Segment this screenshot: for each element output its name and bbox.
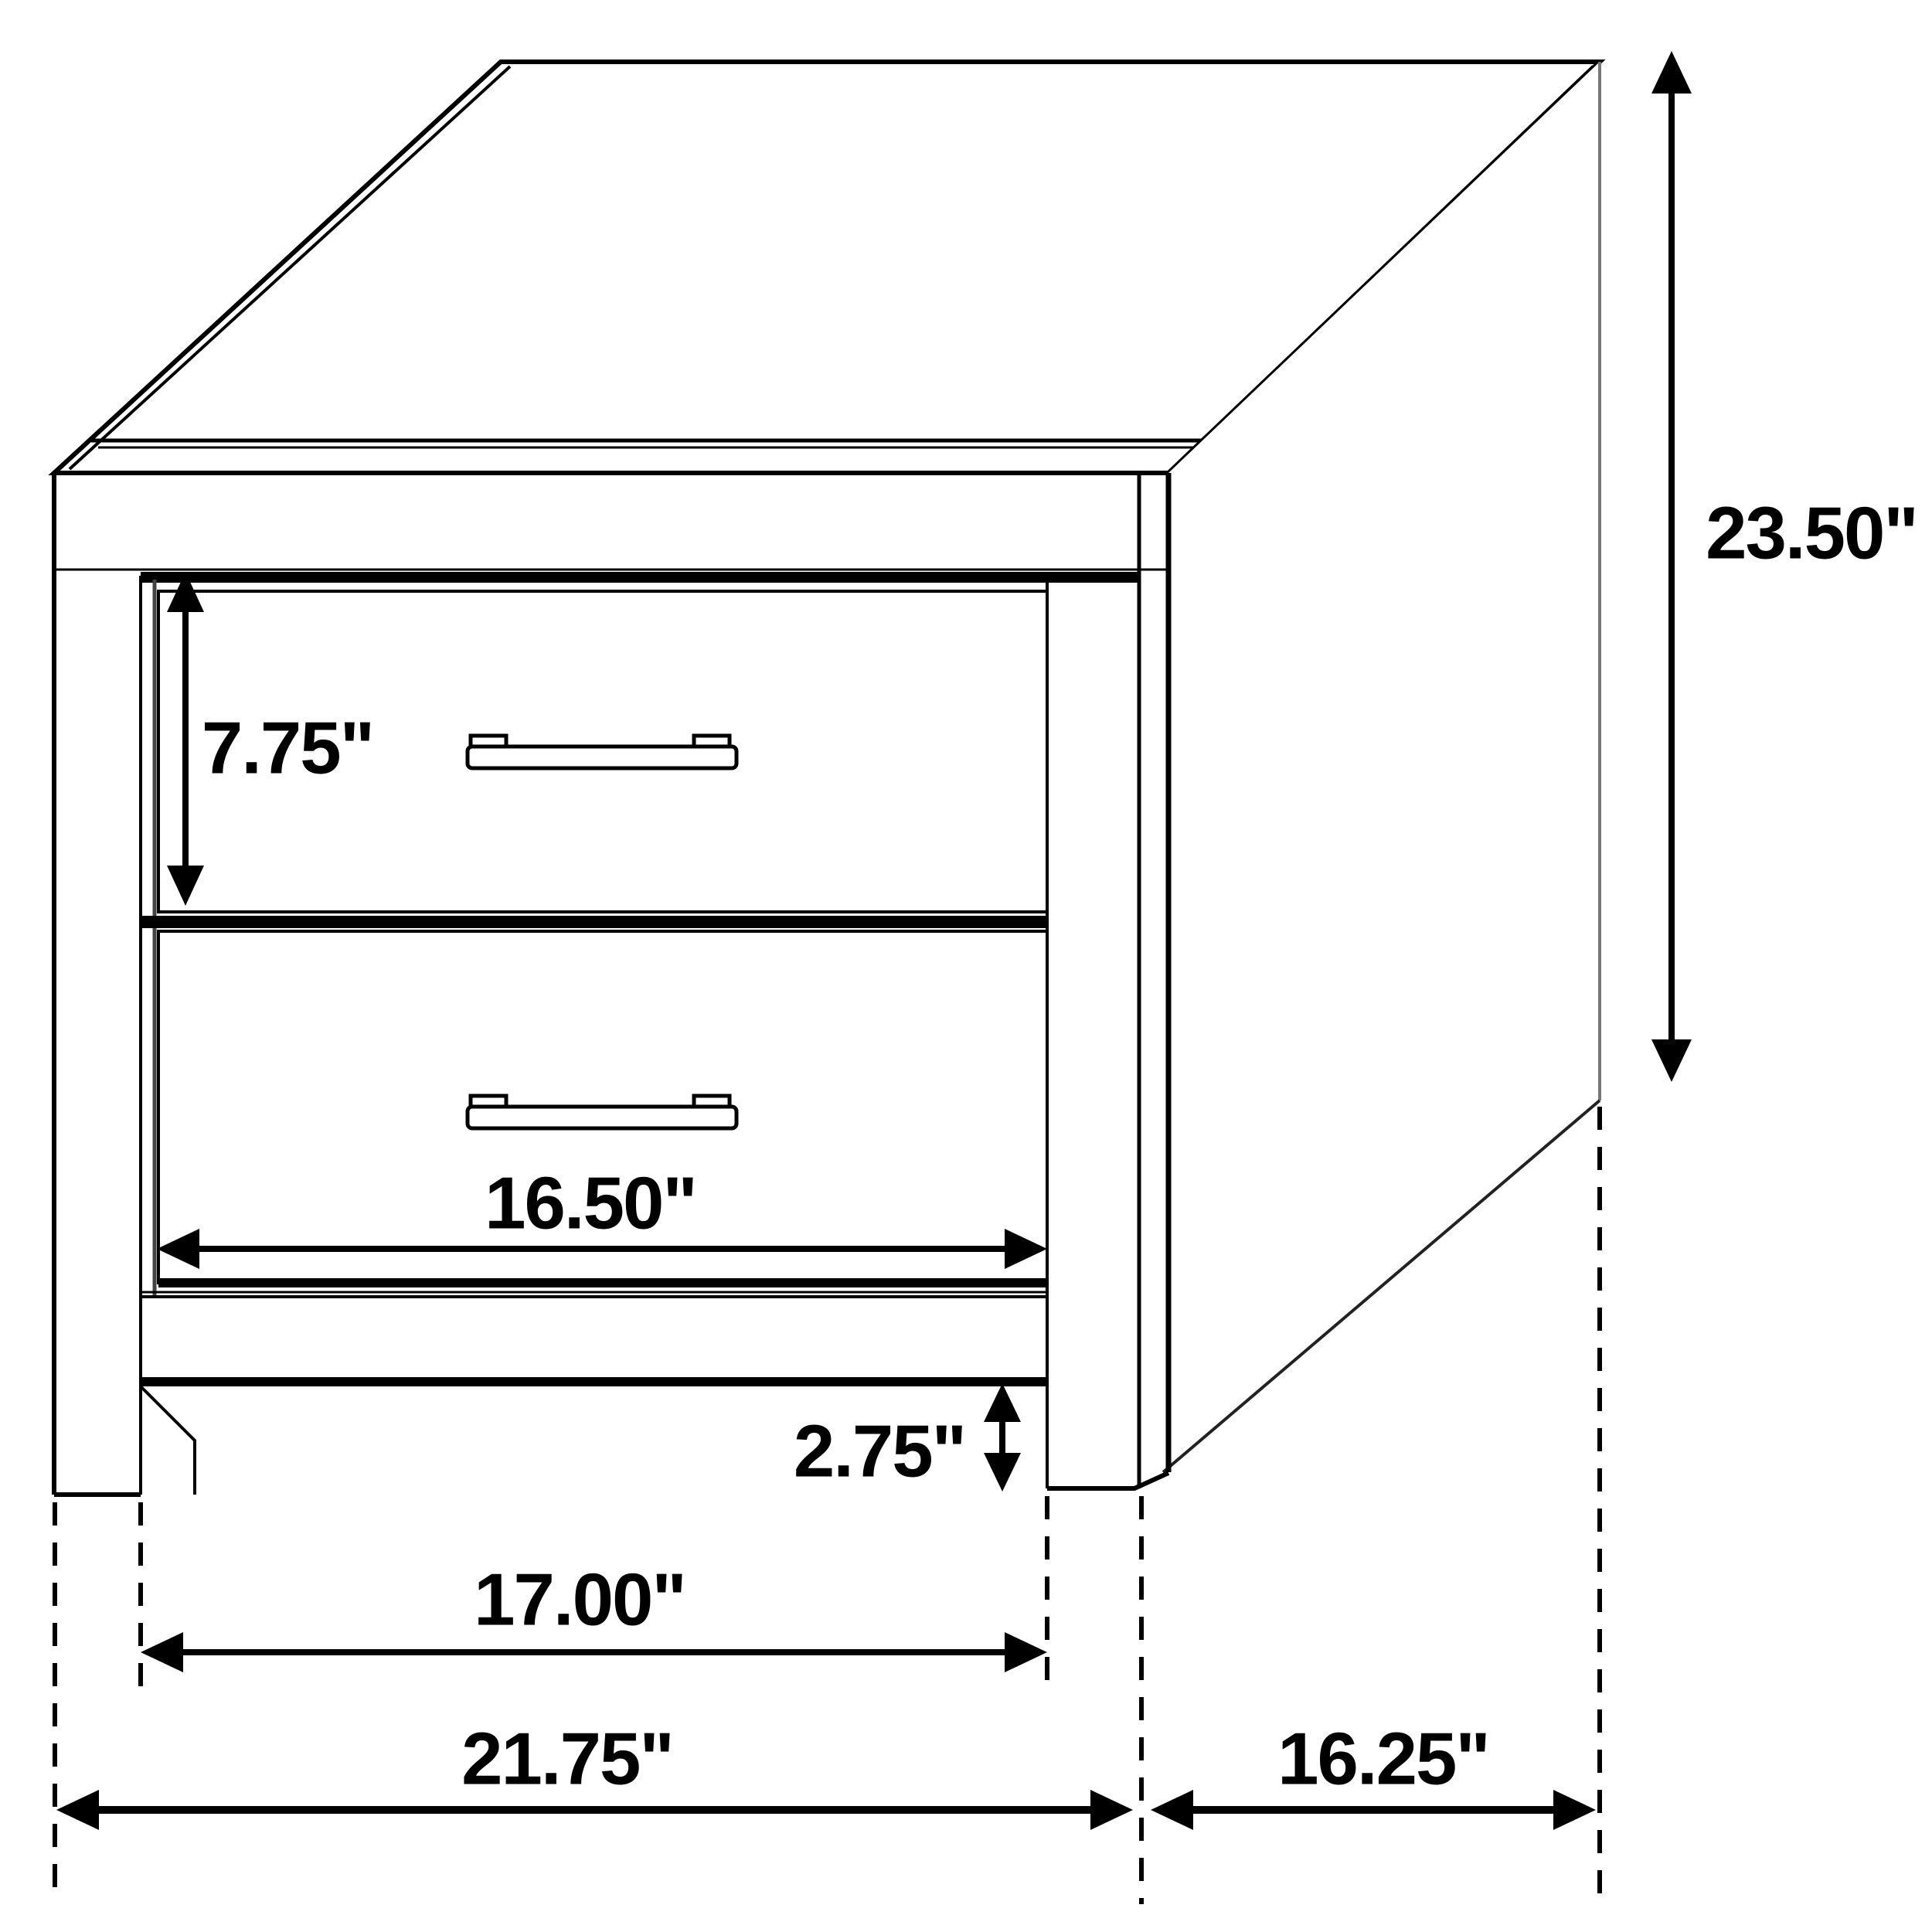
bottom-rail-face — [141, 1297, 1047, 1379]
leg-height-dimension-arrow — [984, 1383, 1021, 1492]
arrowhead-down-icon — [984, 1453, 1021, 1492]
arrowhead-right-icon — [1553, 1790, 1596, 1830]
nightstand-dimension-diagram: 23.50" 7.75" 16.50" 2.75" 17.00" 21.75" … — [0, 0, 1932, 1932]
drawer-height-dimension-label: 7.75" — [202, 707, 373, 790]
inner-width-dimension-label: 17.00" — [474, 1559, 685, 1641]
drawer-2-handle-bar — [468, 1107, 736, 1128]
leg-height-dimension-label: 2.75" — [794, 1410, 965, 1493]
bottom-rail — [141, 1297, 1047, 1382]
left-leg-inner-face — [141, 1386, 195, 1495]
right-leg-bottom-edge — [1047, 1473, 1168, 1488]
arrowhead-right-icon — [1090, 1790, 1133, 1830]
arrowhead-right-icon — [1005, 1632, 1047, 1672]
arrowhead-left-icon — [141, 1632, 183, 1672]
arrowhead-down-icon — [1651, 1039, 1692, 1082]
height-dimension-arrow — [1651, 51, 1692, 1082]
drawer-width-dimension-label: 16.50" — [485, 1162, 696, 1245]
height-dimension-label: 23.50" — [1706, 492, 1917, 575]
arrowhead-left-icon — [56, 1790, 99, 1830]
overall-depth-dimension-label: 16.25" — [1277, 1718, 1489, 1801]
drawer-1-handle-bar — [468, 747, 736, 768]
arrowhead-left-icon — [1151, 1790, 1193, 1830]
overall-width-dimension-label: 21.75" — [461, 1718, 673, 1801]
arrowhead-up-icon — [1651, 51, 1692, 94]
arrowhead-up-icon — [984, 1383, 1021, 1422]
